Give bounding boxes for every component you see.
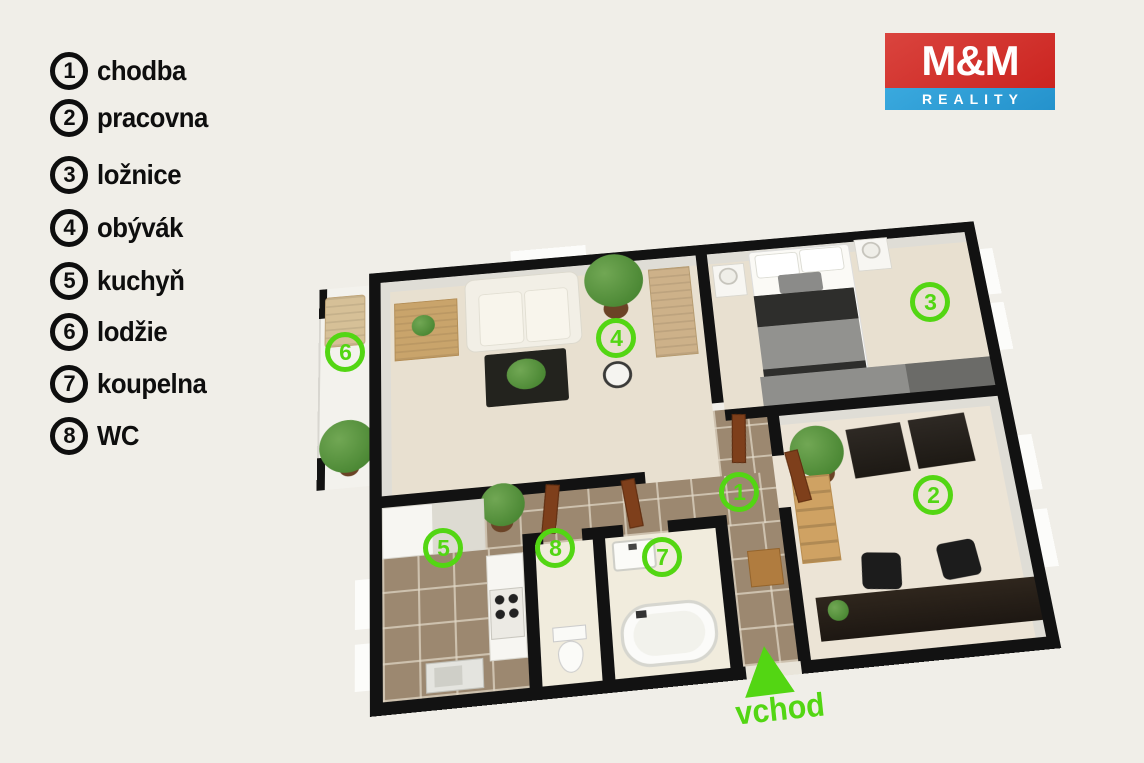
hallway-side-table [747, 548, 784, 588]
legend-label: pracovna [97, 102, 208, 134]
legend-item-lodzie: 6lodžie [50, 312, 173, 352]
marker-number: 7 [656, 544, 668, 571]
legend-label: ložnice [97, 159, 181, 191]
bedroom-door [732, 414, 746, 463]
entrance-label: vchod [725, 685, 835, 734]
kitchen-window [355, 643, 370, 692]
outer-wall-left [369, 273, 383, 717]
marker-number: 1 [733, 479, 745, 506]
legend-number-circle: 6 [50, 313, 88, 351]
legend-item-pracovna: 2pracovna [50, 98, 218, 138]
marker-number: 8 [549, 535, 561, 562]
legend-number-circle: 8 [50, 417, 88, 455]
legend-number-circle: 1 [50, 52, 88, 90]
legend-item-obyvak: 4obývák [50, 208, 191, 248]
marker-number: 5 [437, 535, 449, 562]
logo-reality-text: REALITY [885, 88, 1055, 110]
sofa-cushion [524, 287, 571, 343]
marker-number: 6 [339, 339, 351, 366]
tub-faucet [636, 610, 647, 618]
floorplan-3d [369, 221, 1061, 717]
legend-label: kuchyň [97, 265, 184, 297]
armchair-cube [908, 412, 976, 468]
marker-number: 3 [924, 289, 936, 316]
kitchen-sink-basin [434, 665, 462, 687]
logo-mm-text: M&M [885, 33, 1055, 88]
legend-item-wc: 8WC [50, 416, 143, 456]
floorplan-page: 1chodba 2pracovna 3ložnice 4obývák 5kuch… [0, 0, 1144, 763]
marker-koupelna: 7 [642, 537, 682, 577]
marker-loznice: 3 [910, 282, 950, 322]
kitchen-window [355, 579, 370, 630]
office-chair [861, 552, 902, 589]
legend-number-circle: 3 [50, 156, 88, 194]
legend-number-circle: 4 [50, 209, 88, 247]
legend-number-circle: 5 [50, 262, 88, 300]
legend-item-chodba: 1chodba [50, 51, 194, 91]
marker-number: 2 [927, 482, 939, 509]
legend-item-koupelna: 7koupelna [50, 364, 216, 404]
marker-number: 4 [610, 325, 622, 352]
legend-item-loznice: 3ložnice [50, 155, 188, 195]
marker-wc: 8 [535, 528, 575, 568]
marker-lodzie: 6 [325, 332, 365, 372]
legend-label: koupelna [97, 368, 206, 400]
marker-chodba: 1 [719, 472, 759, 512]
marker-pracovna: 2 [913, 475, 953, 515]
marker-obyvak: 4 [596, 318, 636, 358]
legend-item-kuchyn: 5kuchyň [50, 261, 192, 301]
marker-kuchyn: 5 [423, 528, 463, 568]
sofa-cushion [478, 291, 524, 347]
legend-label: WC [97, 420, 139, 452]
legend-label: obývák [97, 212, 183, 244]
armchair-cube [845, 422, 910, 479]
legend-label: chodba [97, 55, 186, 87]
wall-face [381, 282, 392, 496]
legend-label: lodžie [97, 316, 167, 348]
sink-faucet [628, 543, 637, 550]
legend-number-circle: 2 [50, 99, 88, 137]
bed-pillow [799, 246, 845, 273]
mm-reality-logo: M&M REALITY [885, 33, 1055, 110]
legend-number-circle: 7 [50, 365, 88, 403]
